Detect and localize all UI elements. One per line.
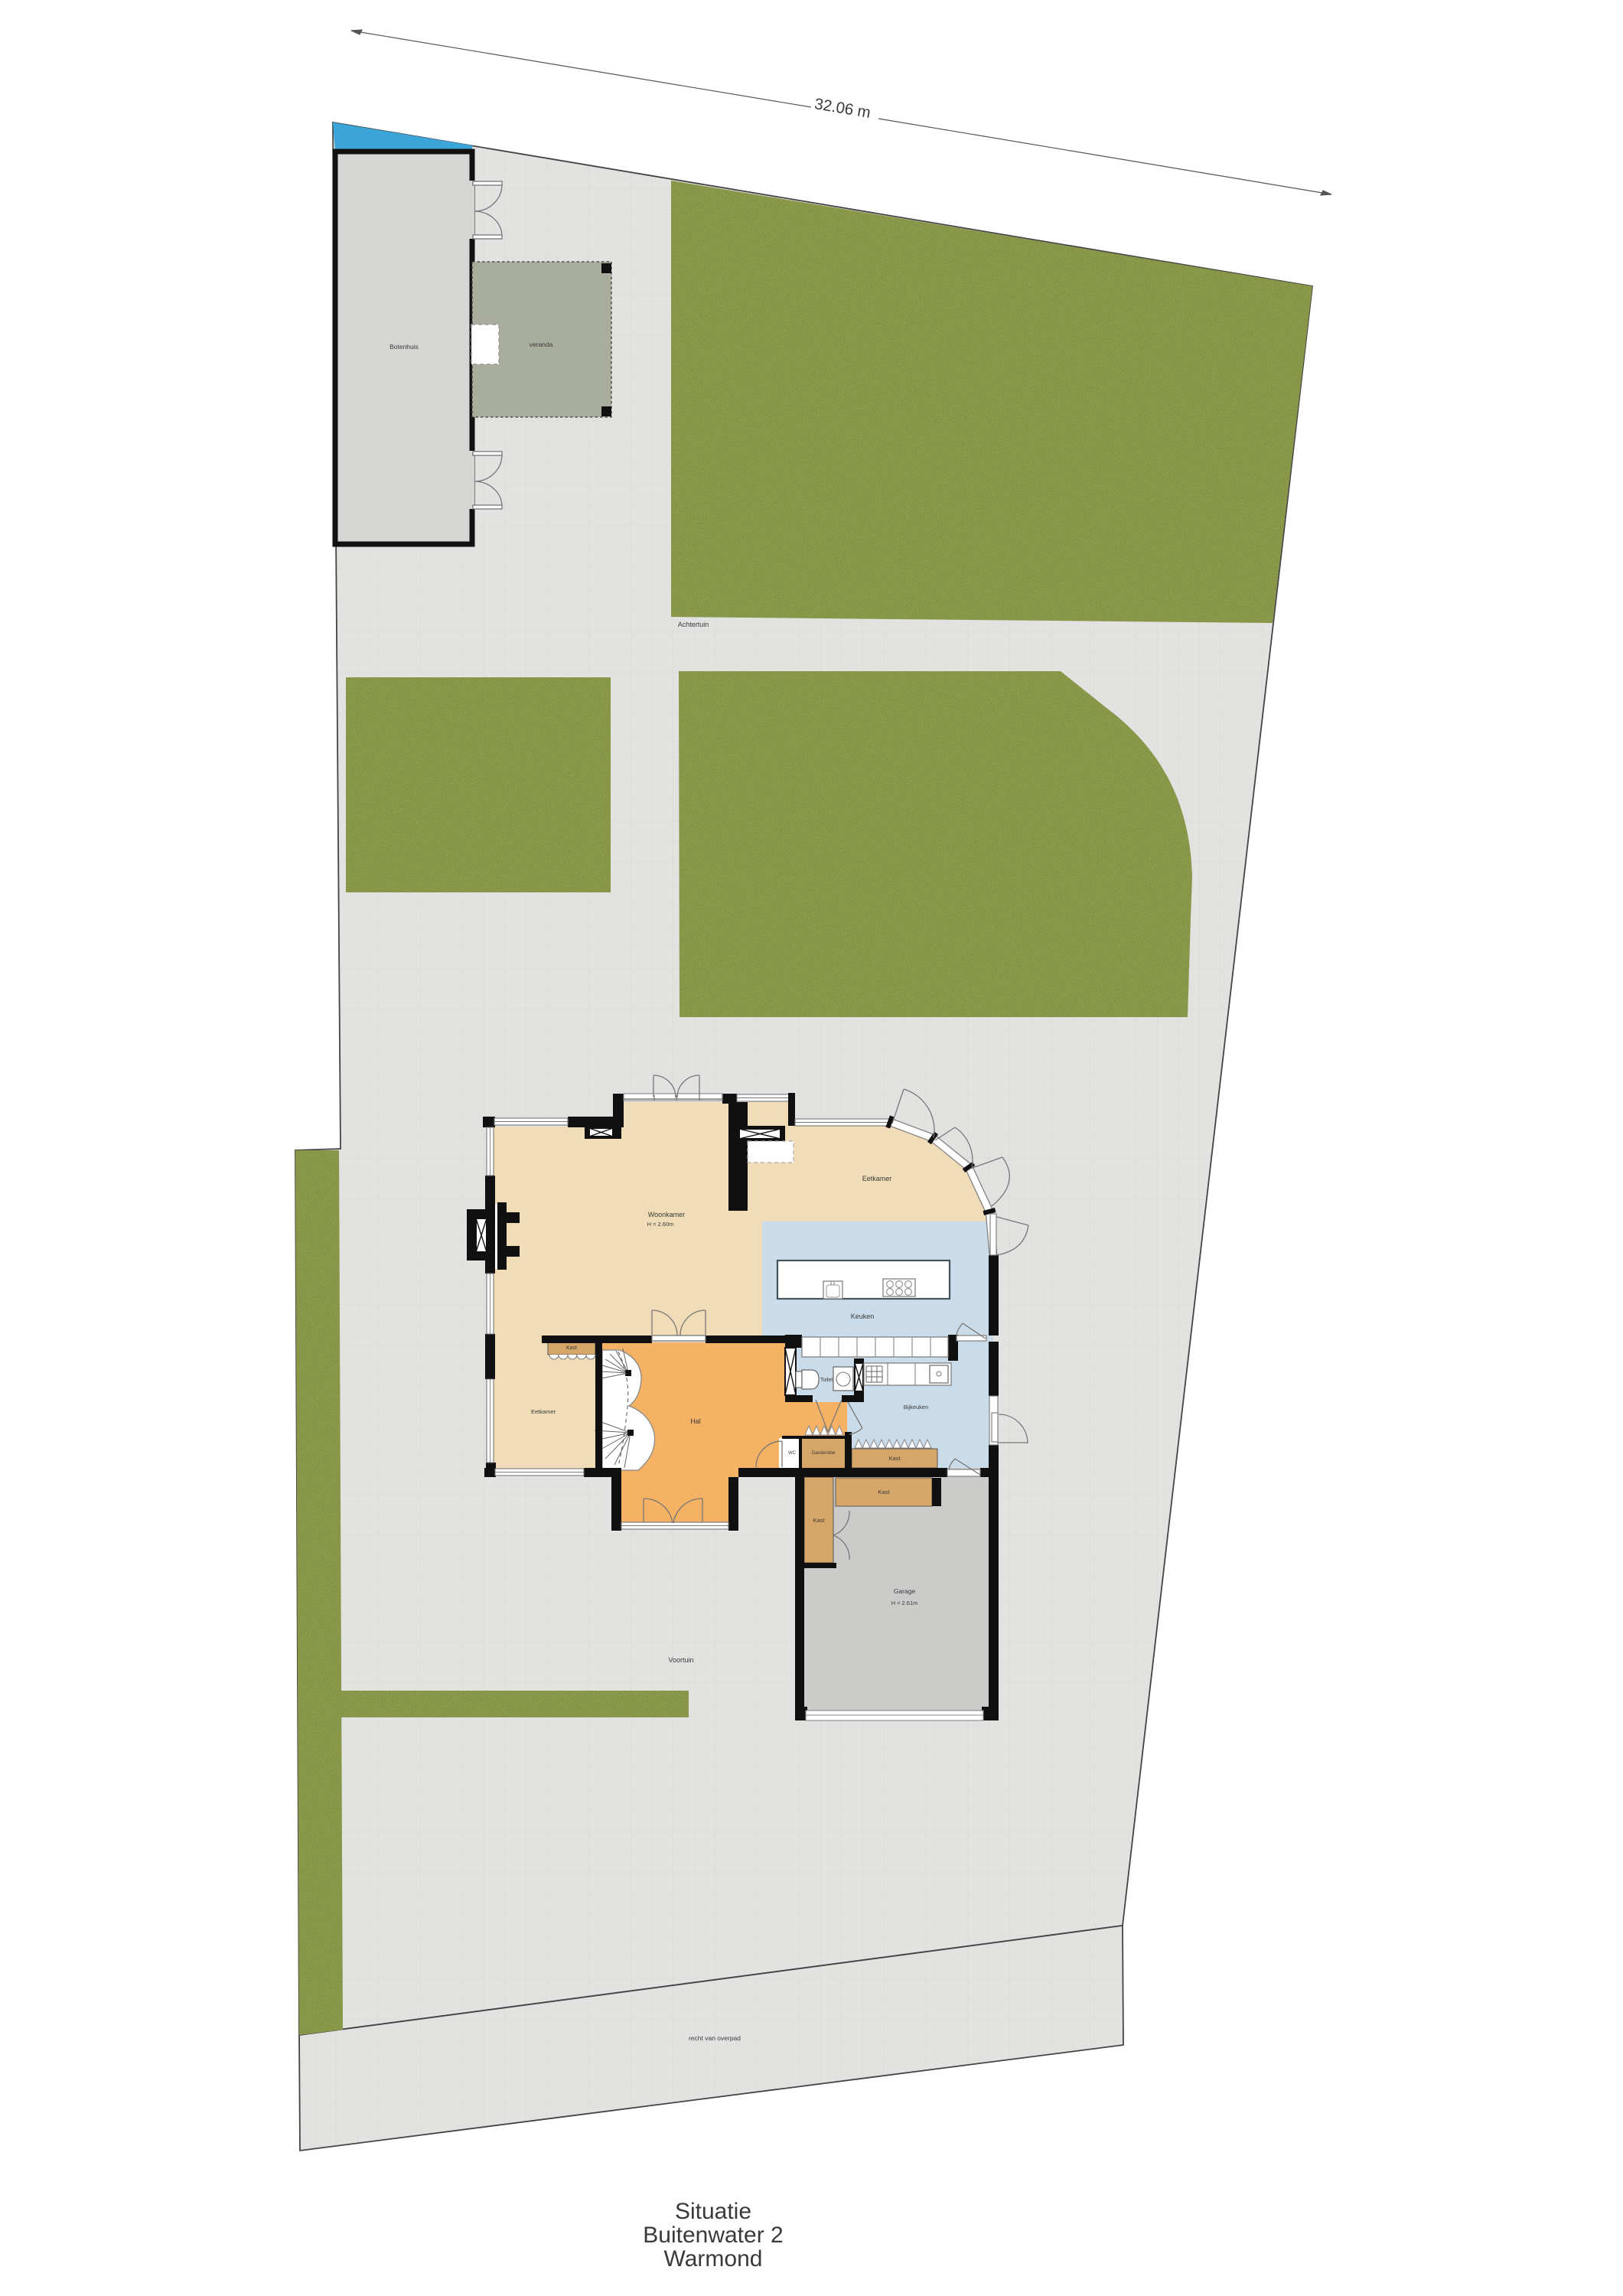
- svg-text:Voortuin: Voortuin: [668, 1656, 693, 1664]
- svg-text:Achtertuin: Achtertuin: [678, 621, 709, 628]
- svg-text:Garage: Garage: [894, 1587, 916, 1595]
- svg-text:Kast: Kast: [566, 1345, 577, 1351]
- svg-text:recht van overpad: recht van overpad: [689, 2034, 741, 2042]
- svg-text:Situatie: Situatie: [675, 2199, 751, 2224]
- svg-text:WC: WC: [788, 1451, 797, 1456]
- svg-text:Bijkeuken: Bijkeuken: [904, 1404, 929, 1411]
- svg-text:Eetkamer: Eetkamer: [862, 1175, 892, 1182]
- svg-text:Kast: Kast: [888, 1455, 901, 1462]
- svg-text:Kast: Kast: [878, 1489, 890, 1495]
- svg-text:Eetkamer: Eetkamer: [531, 1408, 556, 1415]
- svg-text:Garderobe: Garderobe: [811, 1450, 835, 1456]
- svg-text:Toilet: Toilet: [820, 1378, 833, 1383]
- svg-text:Buitenwater 2: Buitenwater 2: [643, 2223, 783, 2248]
- svg-text:Warmond: Warmond: [664, 2246, 763, 2272]
- svg-text:Keuken: Keuken: [851, 1313, 875, 1320]
- svg-text:Botenhuis: Botenhuis: [389, 343, 419, 351]
- svg-text:Woonkamer: Woonkamer: [648, 1211, 685, 1218]
- svg-text:Kast: Kast: [813, 1517, 825, 1524]
- svg-text:veranda: veranda: [530, 341, 553, 348]
- svg-text:H = 2.61m: H = 2.61m: [891, 1600, 918, 1606]
- svg-text:32.06 m: 32.06 m: [813, 95, 872, 122]
- svg-text:Hal: Hal: [690, 1417, 701, 1425]
- svg-text:H = 2.60m: H = 2.60m: [647, 1221, 674, 1228]
